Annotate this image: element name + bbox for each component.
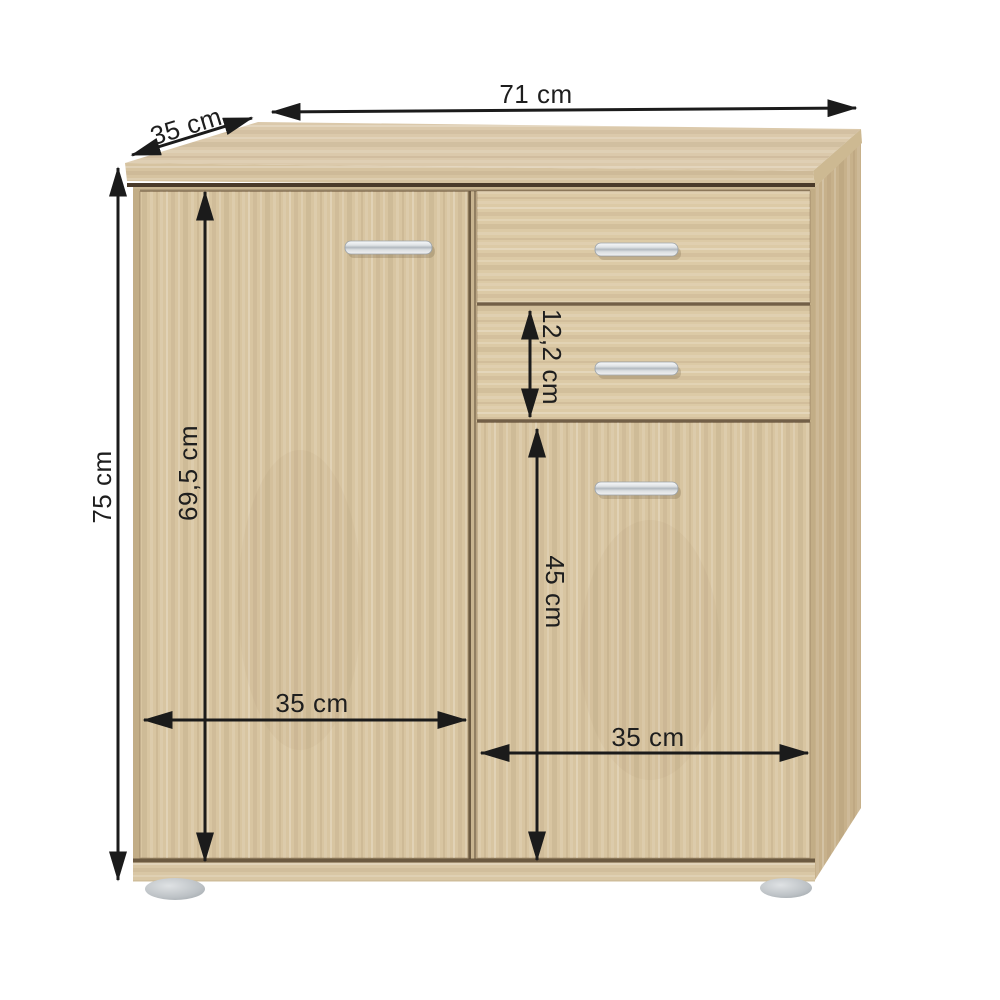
label-height: 75 cm bbox=[87, 450, 117, 523]
label-width: 71 cm bbox=[499, 79, 572, 109]
left-foot bbox=[145, 878, 205, 900]
plinth-grain bbox=[133, 863, 815, 882]
carcass-right-edge bbox=[810, 189, 815, 862]
label-left-door-width: 35 cm bbox=[275, 688, 348, 718]
label-right-door-width: 35 cm bbox=[611, 722, 684, 752]
drawer-top-handle bbox=[595, 243, 678, 256]
gap-drawer2-door bbox=[477, 420, 810, 423]
carcass-left-edge bbox=[133, 189, 140, 862]
label-drawer-height: 12,2 cm bbox=[537, 309, 567, 405]
drawer-bottom-handle bbox=[595, 362, 678, 375]
label-right-door-height: 45 cm bbox=[540, 555, 570, 628]
right-door-handle bbox=[595, 482, 678, 495]
side-panel-grain bbox=[815, 143, 861, 880]
right-foot bbox=[760, 878, 812, 898]
gap-bottom bbox=[133, 859, 815, 863]
gap-drawer1-drawer2 bbox=[477, 303, 810, 306]
cabinet bbox=[125, 122, 862, 900]
divider-gap-left-line bbox=[469, 191, 472, 859]
label-left-door-height: 69,5 cm bbox=[173, 425, 203, 521]
product-dimension-diagram: 71 cm 35 cm 75 cm 69,5 cm 12,2 cm 45 cm … bbox=[0, 0, 1000, 1000]
left-door-handle bbox=[345, 241, 432, 254]
top-surface-grain bbox=[125, 122, 861, 171]
slab-gap-line bbox=[127, 183, 815, 187]
divider-gap-right-line bbox=[474, 191, 476, 859]
diagram-canvas: 71 cm 35 cm 75 cm 69,5 cm 12,2 cm 45 cm … bbox=[0, 0, 1000, 1000]
